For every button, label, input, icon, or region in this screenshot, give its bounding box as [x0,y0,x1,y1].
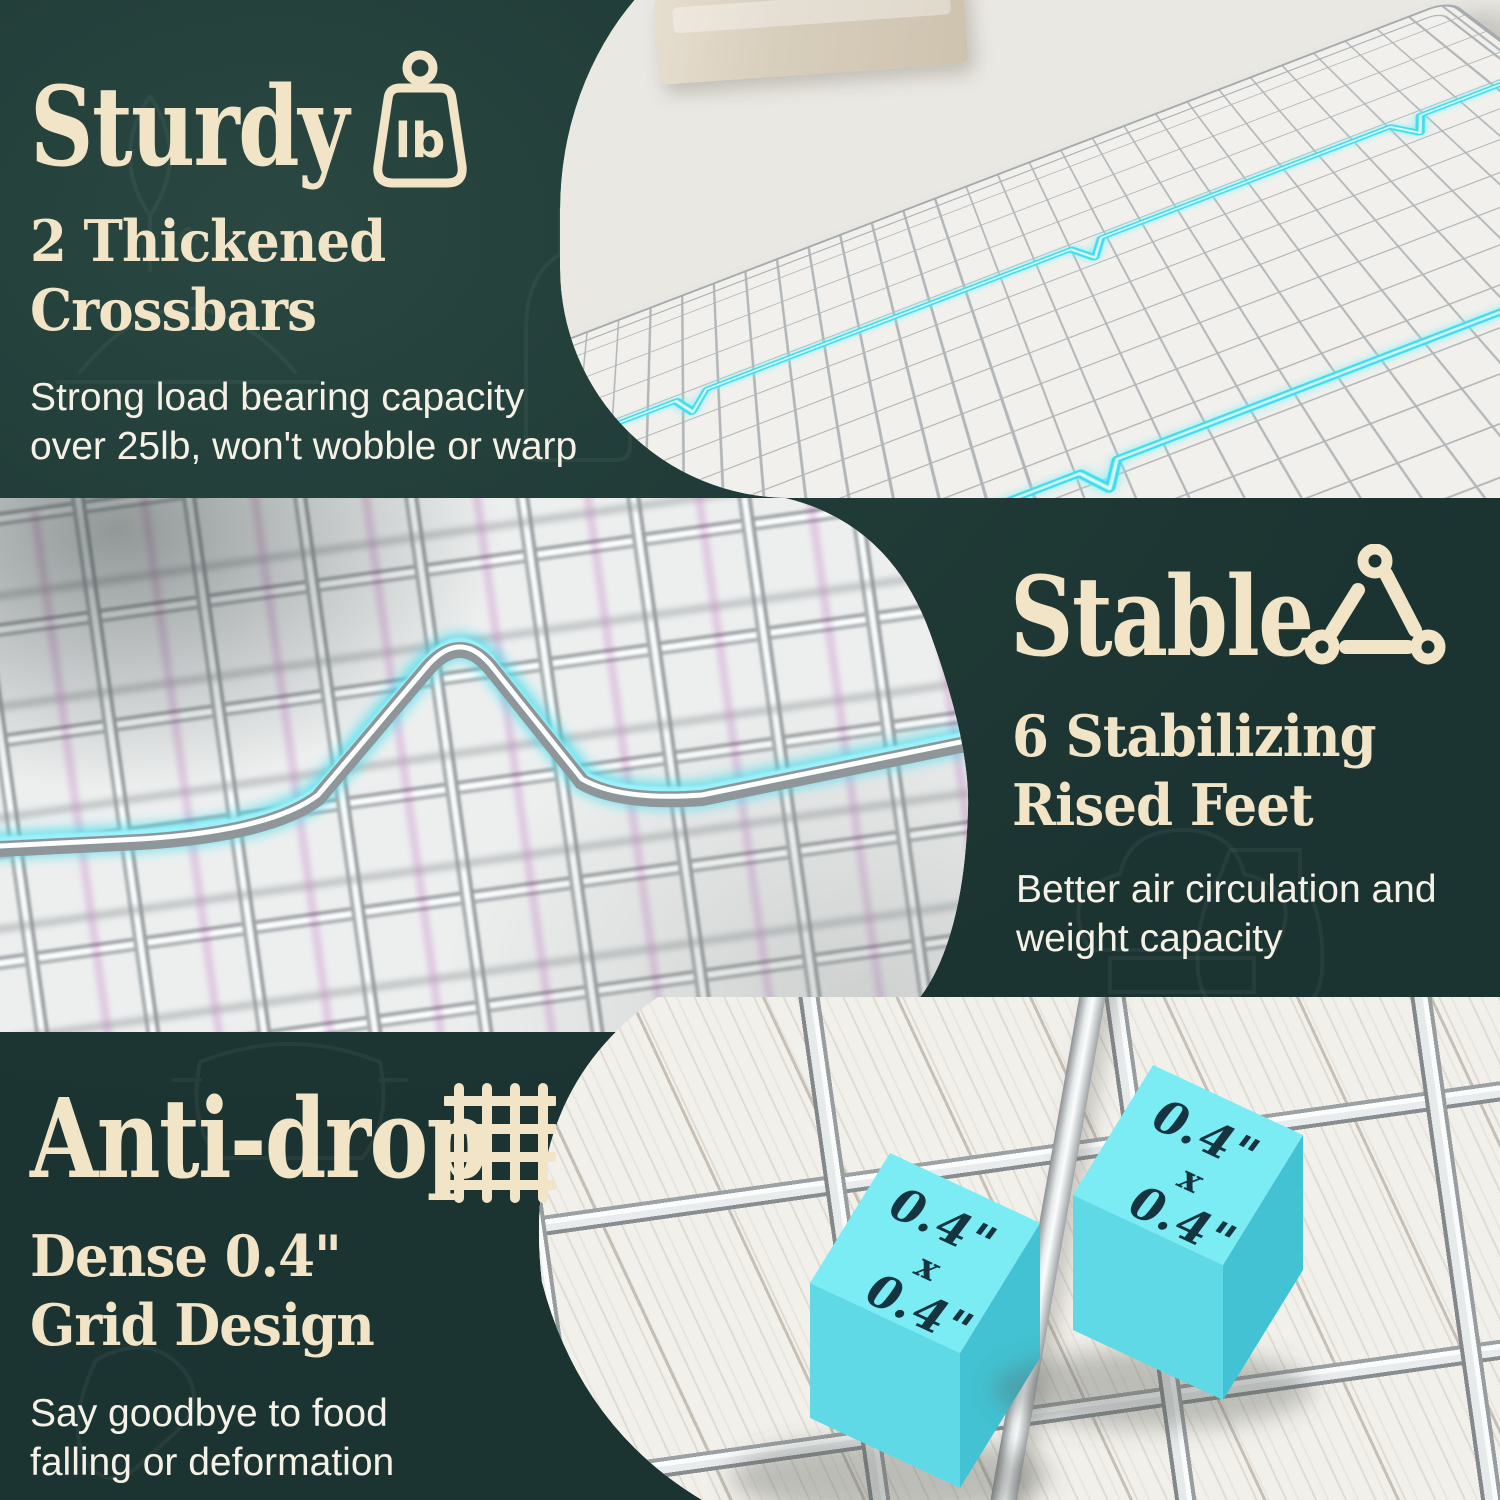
stable-title: Stable [1010,562,1313,672]
cube-right: 0.4" x 0.4" [993,1065,1313,1429]
weight-lb-icon: lb [353,50,487,194]
weight-icon-label: lb [395,113,446,169]
antidrop-body-line2: falling or deformation [30,1438,394,1487]
stable-body-line2: weight capacity [1016,914,1437,963]
antidrop-subtitle-line2: Grid Design [30,1291,374,1360]
photo-cooling-rack-overview [560,0,1500,498]
stable-subtitle: 6 Stabilizing Rised Feet [1012,702,1376,840]
photo-crossbar-closeup [0,498,980,1032]
stability-triangle-icon [1302,544,1450,674]
dense-grid-icon [444,1082,556,1204]
sturdy-subtitle: 2 Thickened Crossbars [30,207,385,345]
stable-subtitle-line1: 6 Stabilizing [1012,702,1376,771]
linen-cloth [653,0,968,85]
sturdy-body-line1: Strong load bearing capacity [30,373,577,422]
antidrop-body: Say goodbye to food falling or deformati… [30,1389,394,1487]
raised-foot-wire [0,498,980,1032]
antidrop-title: Anti-drop [30,1084,487,1194]
antidrop-body-line1: Say goodbye to food [30,1389,394,1438]
sturdy-title: Sturdy [30,72,348,182]
antidrop-subtitle-line1: Dense 0.4" [30,1222,374,1291]
product-infographic: 0.4" x 0.4" 0.4" x 0.4" Sturdy [0,0,1500,1500]
sturdy-subtitle-line2: Crossbars [30,276,385,345]
sturdy-body: Strong load bearing capacity over 25lb, … [30,373,577,471]
stable-body-line1: Better air circulation and [1016,865,1437,914]
stable-body: Better air circulation and weight capaci… [1016,865,1437,963]
antidrop-subtitle: Dense 0.4" Grid Design [30,1222,374,1360]
cube-left: 0.4" x 0.4" [730,1153,1050,1500]
sturdy-body-line2: over 25lb, won't wobble or warp [30,422,577,471]
stable-subtitle-line2: Rised Feet [1012,771,1376,840]
sturdy-subtitle-line1: 2 Thickened [30,207,385,276]
